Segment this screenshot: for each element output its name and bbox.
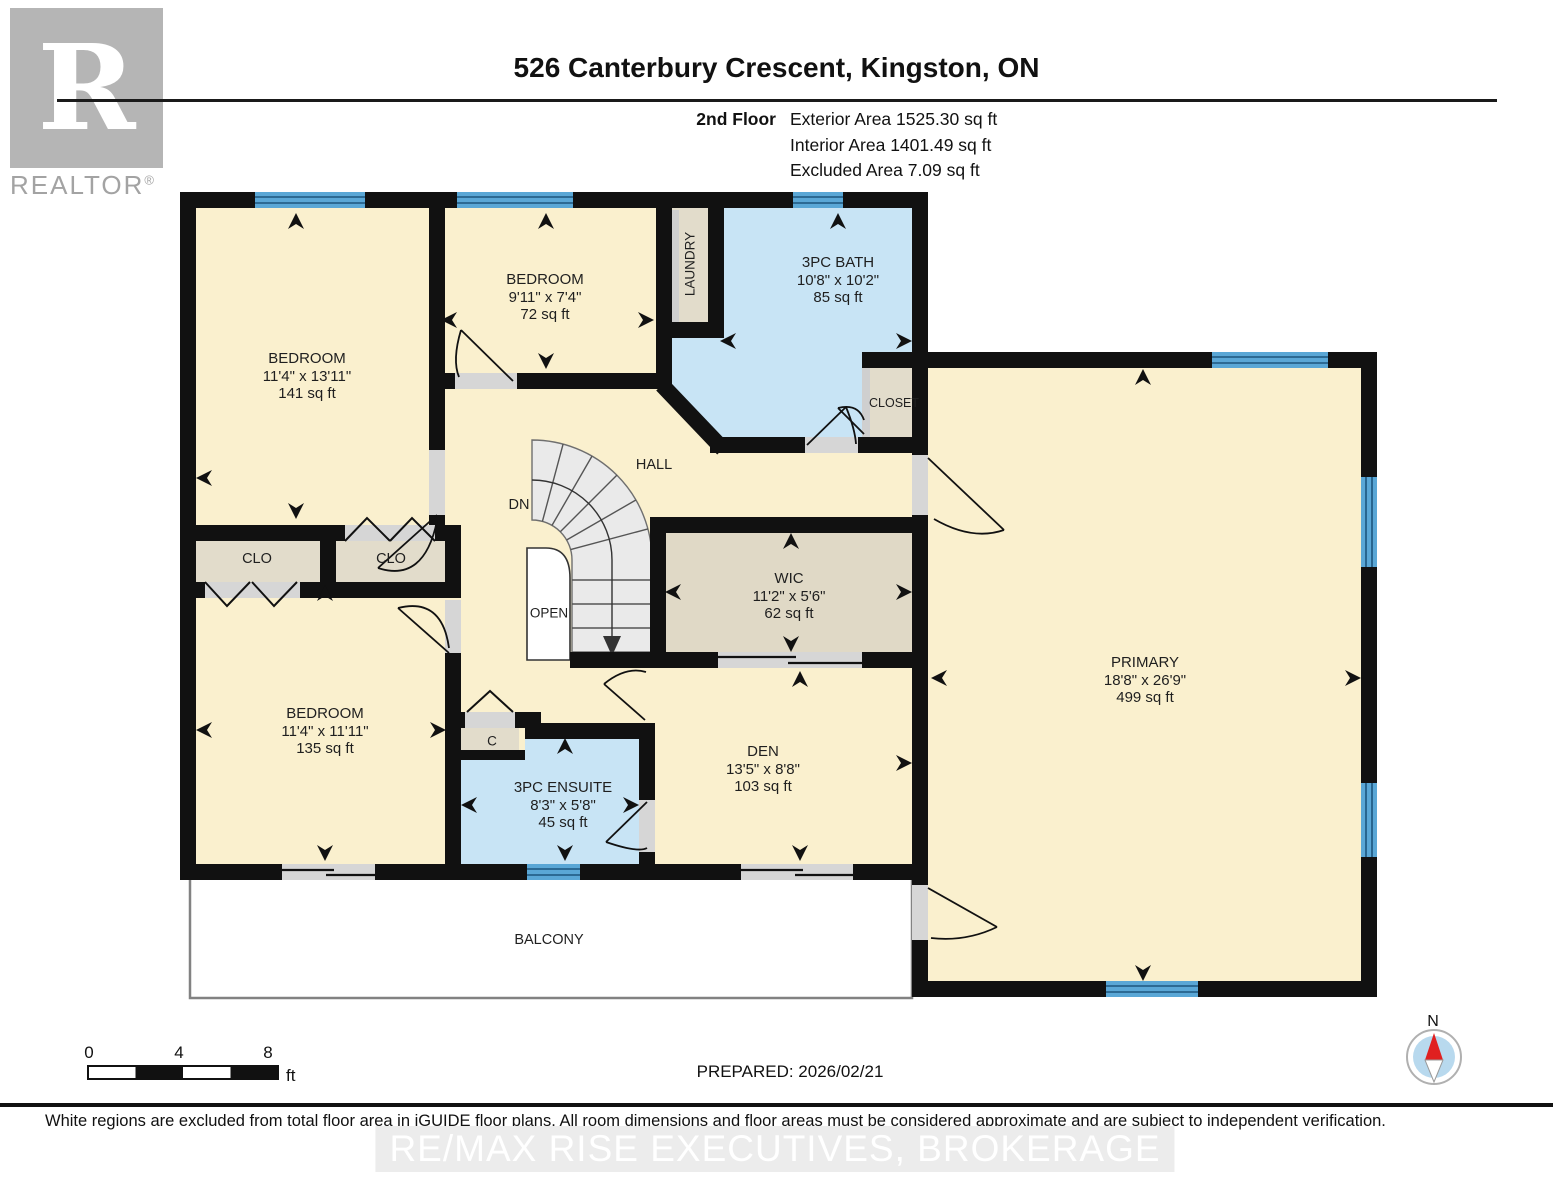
closet-label: CLOSET	[869, 396, 919, 410]
room-label-den: DEN 13'5" x 8'8" 103 sq ft	[726, 743, 800, 796]
scale-8: 8	[263, 1043, 272, 1063]
laundry-opening	[672, 210, 679, 322]
room-area: 45 sq ft	[514, 814, 612, 832]
room-name: DEN	[726, 743, 800, 761]
room-dims: 11'4" x 13'11"	[263, 367, 351, 385]
room-dims: 9'11" x 7'4"	[506, 288, 584, 306]
scale-4: 4	[174, 1043, 183, 1063]
clo-left-label: CLO	[242, 551, 272, 567]
room-area: 141 sq ft	[263, 385, 351, 403]
room-label-bath: 3PC BATH 10'8" x 10'2" 85 sq ft	[797, 254, 879, 307]
room-area: 103 sq ft	[726, 778, 800, 796]
clo-right-label: CLO	[376, 551, 406, 567]
room-name: 3PC BATH	[797, 254, 879, 272]
room-label-bedroom-bottom: BEDROOM 11'4" x 11'11" 135 sq ft	[281, 705, 368, 758]
floor-plan-page: R REALTOR® 526 Canterbury Crescent, King…	[0, 0, 1553, 1200]
c-closet-label: C	[487, 734, 497, 749]
compass-icon	[1407, 1030, 1461, 1084]
room-name: BEDROOM	[263, 350, 351, 368]
balcony-label: BALCONY	[514, 932, 583, 948]
room-name: BEDROOM	[506, 271, 584, 289]
room-name: WIC	[753, 570, 826, 588]
room-name: BEDROOM	[281, 705, 368, 723]
room-label-ensuite: 3PC ENSUITE 8'3" x 5'8" 45 sq ft	[514, 779, 612, 832]
scale-0: 0	[84, 1043, 93, 1063]
room-dims: 18'8" x 26'9"	[1104, 671, 1186, 689]
room-dims: 13'5" x 8'8"	[726, 760, 800, 778]
room-dims: 8'3" x 5'8"	[514, 796, 612, 814]
room-area: 62 sq ft	[753, 605, 826, 623]
room-area: 72 sq ft	[506, 306, 584, 324]
open-to-below	[527, 548, 570, 660]
room-dims: 10'8" x 10'2"	[797, 271, 879, 289]
dn-label: DN	[509, 497, 530, 513]
room-dims: 11'4" x 11'11"	[281, 722, 368, 740]
room-label-bedroom-top-mid: BEDROOM 9'11" x 7'4" 72 sq ft	[506, 271, 584, 324]
footer-divider	[0, 1103, 1553, 1107]
prepared-date: PREPARED: 2026/02/21	[697, 1062, 884, 1082]
compass-north-label: N	[1427, 1013, 1439, 1031]
laundry-label: LAUNDRY	[683, 232, 698, 296]
scale-unit: ft	[286, 1066, 295, 1086]
hall-label: HALL	[636, 457, 672, 473]
room-dims: 11'2" x 5'6"	[753, 587, 826, 605]
room-label-wic: WIC 11'2" x 5'6" 62 sq ft	[753, 570, 826, 623]
open-label: OPEN	[530, 606, 568, 621]
room-label-primary: PRIMARY 18'8" x 26'9" 499 sq ft	[1104, 654, 1186, 707]
room-name: 3PC ENSUITE	[514, 779, 612, 797]
room-area: 135 sq ft	[281, 740, 368, 758]
room-name: PRIMARY	[1104, 654, 1186, 672]
room-label-bedroom-top-left: BEDROOM 11'4" x 13'11" 141 sq ft	[263, 350, 351, 403]
room-area: 499 sq ft	[1104, 689, 1186, 707]
scale-bar	[88, 1066, 278, 1079]
room-area: 85 sq ft	[797, 289, 879, 307]
brokerage-watermark: RE/MAX RISE EXECUTIVES, BROKERAGE	[375, 1126, 1174, 1172]
